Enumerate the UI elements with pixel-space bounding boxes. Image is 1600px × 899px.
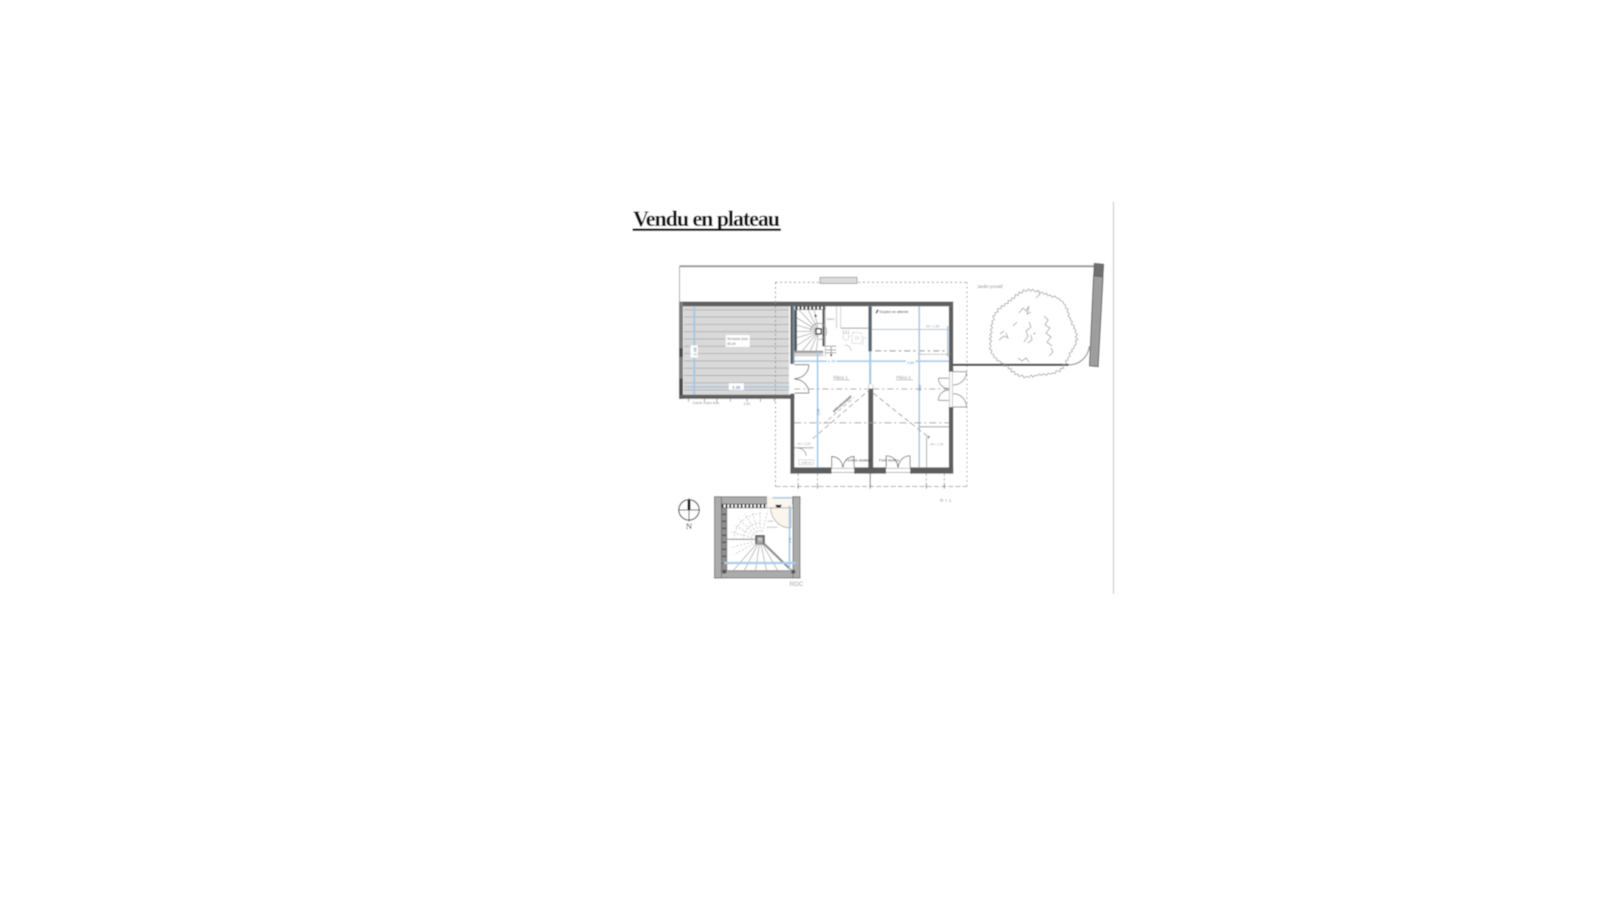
- svg-text:4.80: 4.80: [907, 361, 914, 365]
- svg-text:N: N: [686, 521, 692, 531]
- svg-text:Terrasse bois: Terrasse bois: [727, 337, 748, 341]
- svg-text:Duplex en attente: Duplex en attente: [880, 310, 909, 314]
- svg-text:côte: côte: [768, 519, 774, 523]
- svg-text:R + 1: R + 1: [940, 498, 952, 504]
- svg-text:Jardin privatif: Jardin privatif: [977, 284, 1003, 289]
- svg-text:Ht < 1.20: Ht < 1.20: [930, 443, 943, 447]
- svg-text:5.98: 5.98: [732, 385, 741, 390]
- svg-text:35.20: 35.20: [727, 342, 736, 346]
- svg-text:2.48: 2.48: [788, 537, 792, 543]
- svg-text:Pièce 1: Pièce 1: [833, 375, 848, 380]
- svg-text:Rangement sous rampant: Rangement sous rampant: [918, 352, 951, 356]
- svg-text:Ht < 1.80: Ht < 1.80: [926, 325, 940, 329]
- svg-text:Ht < 1.20: Ht < 1.20: [797, 442, 810, 446]
- svg-text:Gaine: Gaine: [827, 317, 835, 321]
- svg-text:RDC: RDC: [790, 581, 804, 588]
- svg-text:2.48: 2.48: [816, 409, 820, 415]
- svg-text:2.48: 2.48: [693, 347, 698, 356]
- svg-text:Porte fenêtre: Porte fenêtre: [879, 458, 899, 462]
- svg-text:Pièce 2: Pièce 2: [896, 375, 911, 380]
- svg-text:Garde corps bois: Garde corps bois: [693, 401, 720, 405]
- svg-text:Fenêtre abattant: Fenêtre abattant: [846, 458, 872, 462]
- svg-text:Vendu en plateau: Vendu en plateau: [633, 206, 780, 231]
- svg-text:1.02: 1.02: [918, 385, 922, 391]
- svg-text:1.80 ml: 1.80 ml: [801, 461, 811, 465]
- svg-text:d'entrée: d'entrée: [767, 525, 778, 529]
- svg-text:4.76: 4.76: [828, 360, 835, 364]
- svg-text:3.60: 3.60: [744, 402, 751, 406]
